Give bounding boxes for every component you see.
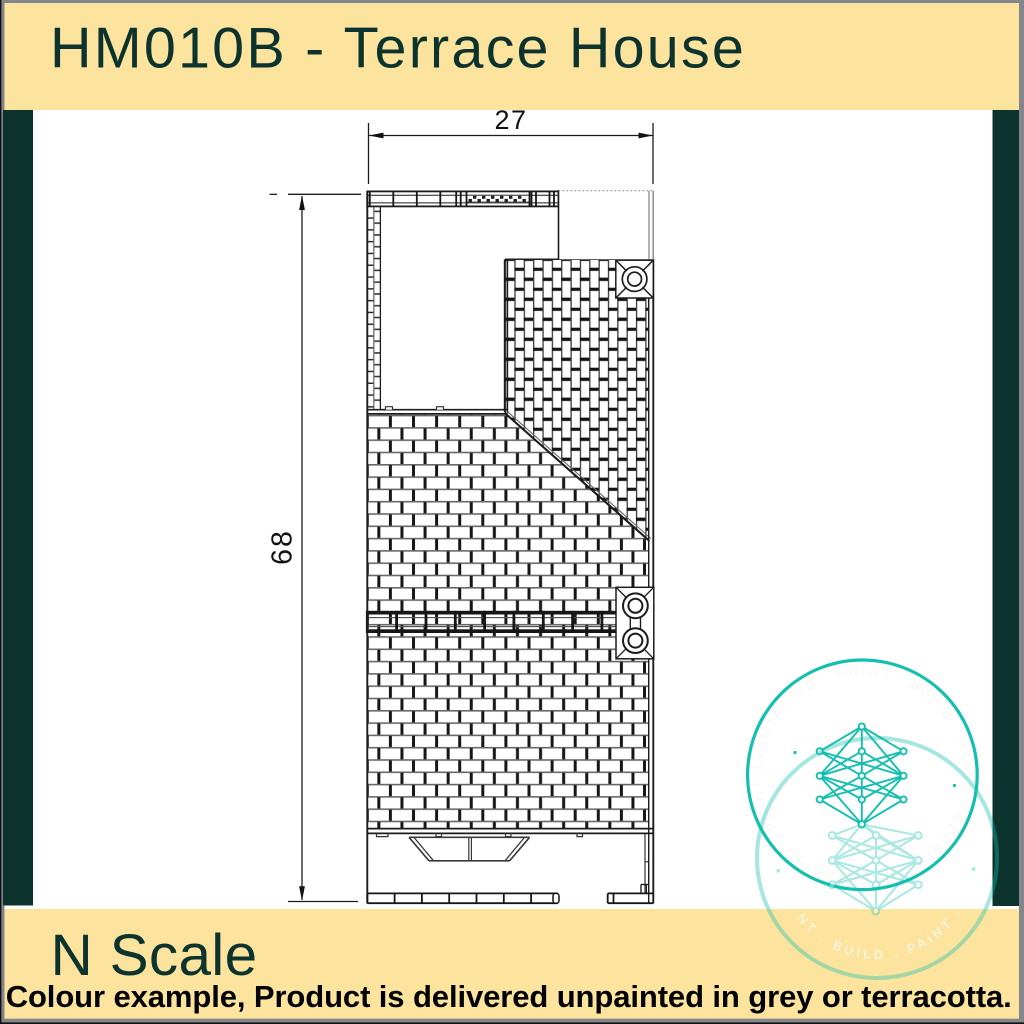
svg-text:27: 27 (494, 105, 527, 135)
svg-text:68: 68 (267, 529, 299, 565)
svg-text:HM010B - Terrace House: HM010B - Terrace House (50, 16, 746, 80)
svg-text:Colour example, Product is del: Colour example, Product is delivered unp… (6, 979, 1012, 1014)
